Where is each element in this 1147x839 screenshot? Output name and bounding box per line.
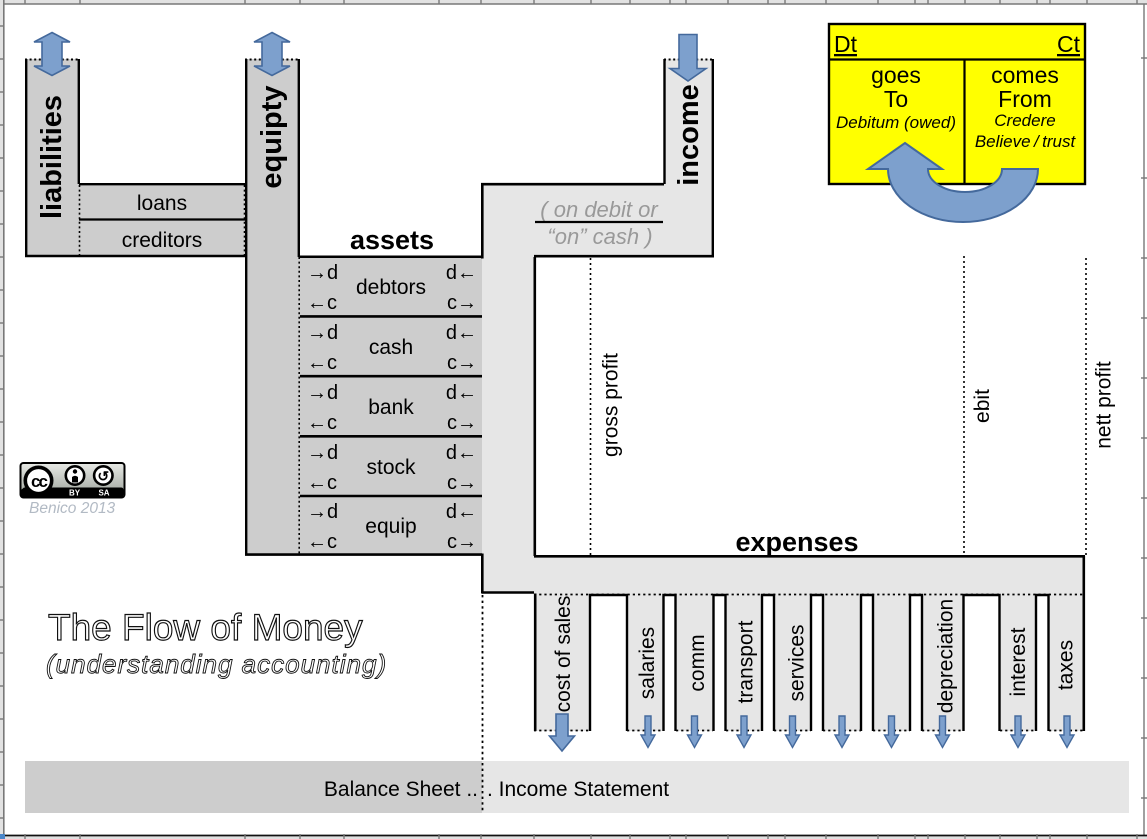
svg-text:BY: BY [69,489,81,498]
svg-text:↺: ↺ [97,468,109,484]
svg-text:d←: d← [446,322,477,344]
svg-text:←c: ←c [307,292,337,314]
svg-text:cost of sales: cost of sales [552,596,575,713]
svg-text:equip: equip [365,515,416,538]
svg-text:←c: ←c [307,412,337,434]
svg-text:loans: loans [137,192,187,215]
svg-text:bank: bank [368,396,414,419]
svg-text:d←: d← [446,501,477,523]
svg-text:The Flow of Money: The Flow of Money [48,607,363,648]
svg-text:Ct: Ct [1057,31,1081,57]
svg-text:c→: c→ [447,352,477,374]
svg-text:(understanding accounting): (understanding accounting) [46,649,387,679]
svg-text:Balance Sheet ..: Balance Sheet .. [324,778,478,801]
svg-text:→d: →d [307,442,338,464]
svg-text:cc: cc [31,472,47,491]
svg-text:To: To [884,86,908,112]
svg-text:income: income [673,84,705,186]
svg-text:debtors: debtors [356,276,426,299]
svg-text:interest: interest [1007,627,1030,696]
svg-text:←c: ←c [307,472,337,494]
svg-text:→d: →d [307,501,338,523]
svg-text:d←: d← [446,262,477,284]
svg-text:equipty: equipty [256,85,288,188]
svg-text:ebit: ebit [971,389,994,423]
svg-text:( on debit or: ( on debit or [540,197,659,222]
svg-text:→d: →d [307,262,338,284]
svg-text:←c: ←c [307,531,337,553]
svg-text:stock: stock [366,456,416,479]
svg-text:taxes: taxes [1055,640,1078,690]
svg-text:. Income Statement: . Income Statement [487,778,669,801]
svg-text:transport: transport [735,620,758,703]
svg-text:assets: assets [350,225,434,255]
svg-text:d←: d← [446,442,477,464]
svg-text:Benico 2013: Benico 2013 [29,500,116,517]
svg-text:SA: SA [98,489,109,498]
svg-text:c→: c→ [447,472,477,494]
svg-text:Debitum (owed): Debitum (owed) [836,113,956,132]
svg-text:“on” cash ): “on” cash ) [547,224,652,249]
svg-text:liabilities: liabilities [36,95,68,219]
svg-text:From: From [998,86,1052,112]
svg-text:expenses: expenses [735,527,858,557]
svg-text:salaries: salaries [636,627,659,699]
svg-text:cash: cash [369,336,413,359]
svg-text:depreciation: depreciation [935,599,958,713]
svg-text:c→: c→ [447,412,477,434]
svg-text:goes: goes [871,62,921,88]
svg-text:Credere: Credere [994,111,1055,130]
svg-text:nett profit: nett profit [1093,361,1116,449]
svg-text:c→: c→ [447,292,477,314]
svg-text:gross profit: gross profit [600,353,623,457]
svg-text:comm: comm [686,634,709,691]
svg-text:→d: →d [307,382,338,404]
svg-text:services: services [786,624,809,701]
svg-text:Dt: Dt [834,31,858,57]
svg-text:←c: ←c [307,352,337,374]
svg-text:comes: comes [991,62,1059,88]
svg-text:c→: c→ [447,531,477,553]
svg-text:creditors: creditors [122,229,203,252]
svg-text:→d: →d [307,322,338,344]
svg-text:Believe / trust: Believe / trust [975,132,1077,151]
svg-text:d←: d← [446,382,477,404]
